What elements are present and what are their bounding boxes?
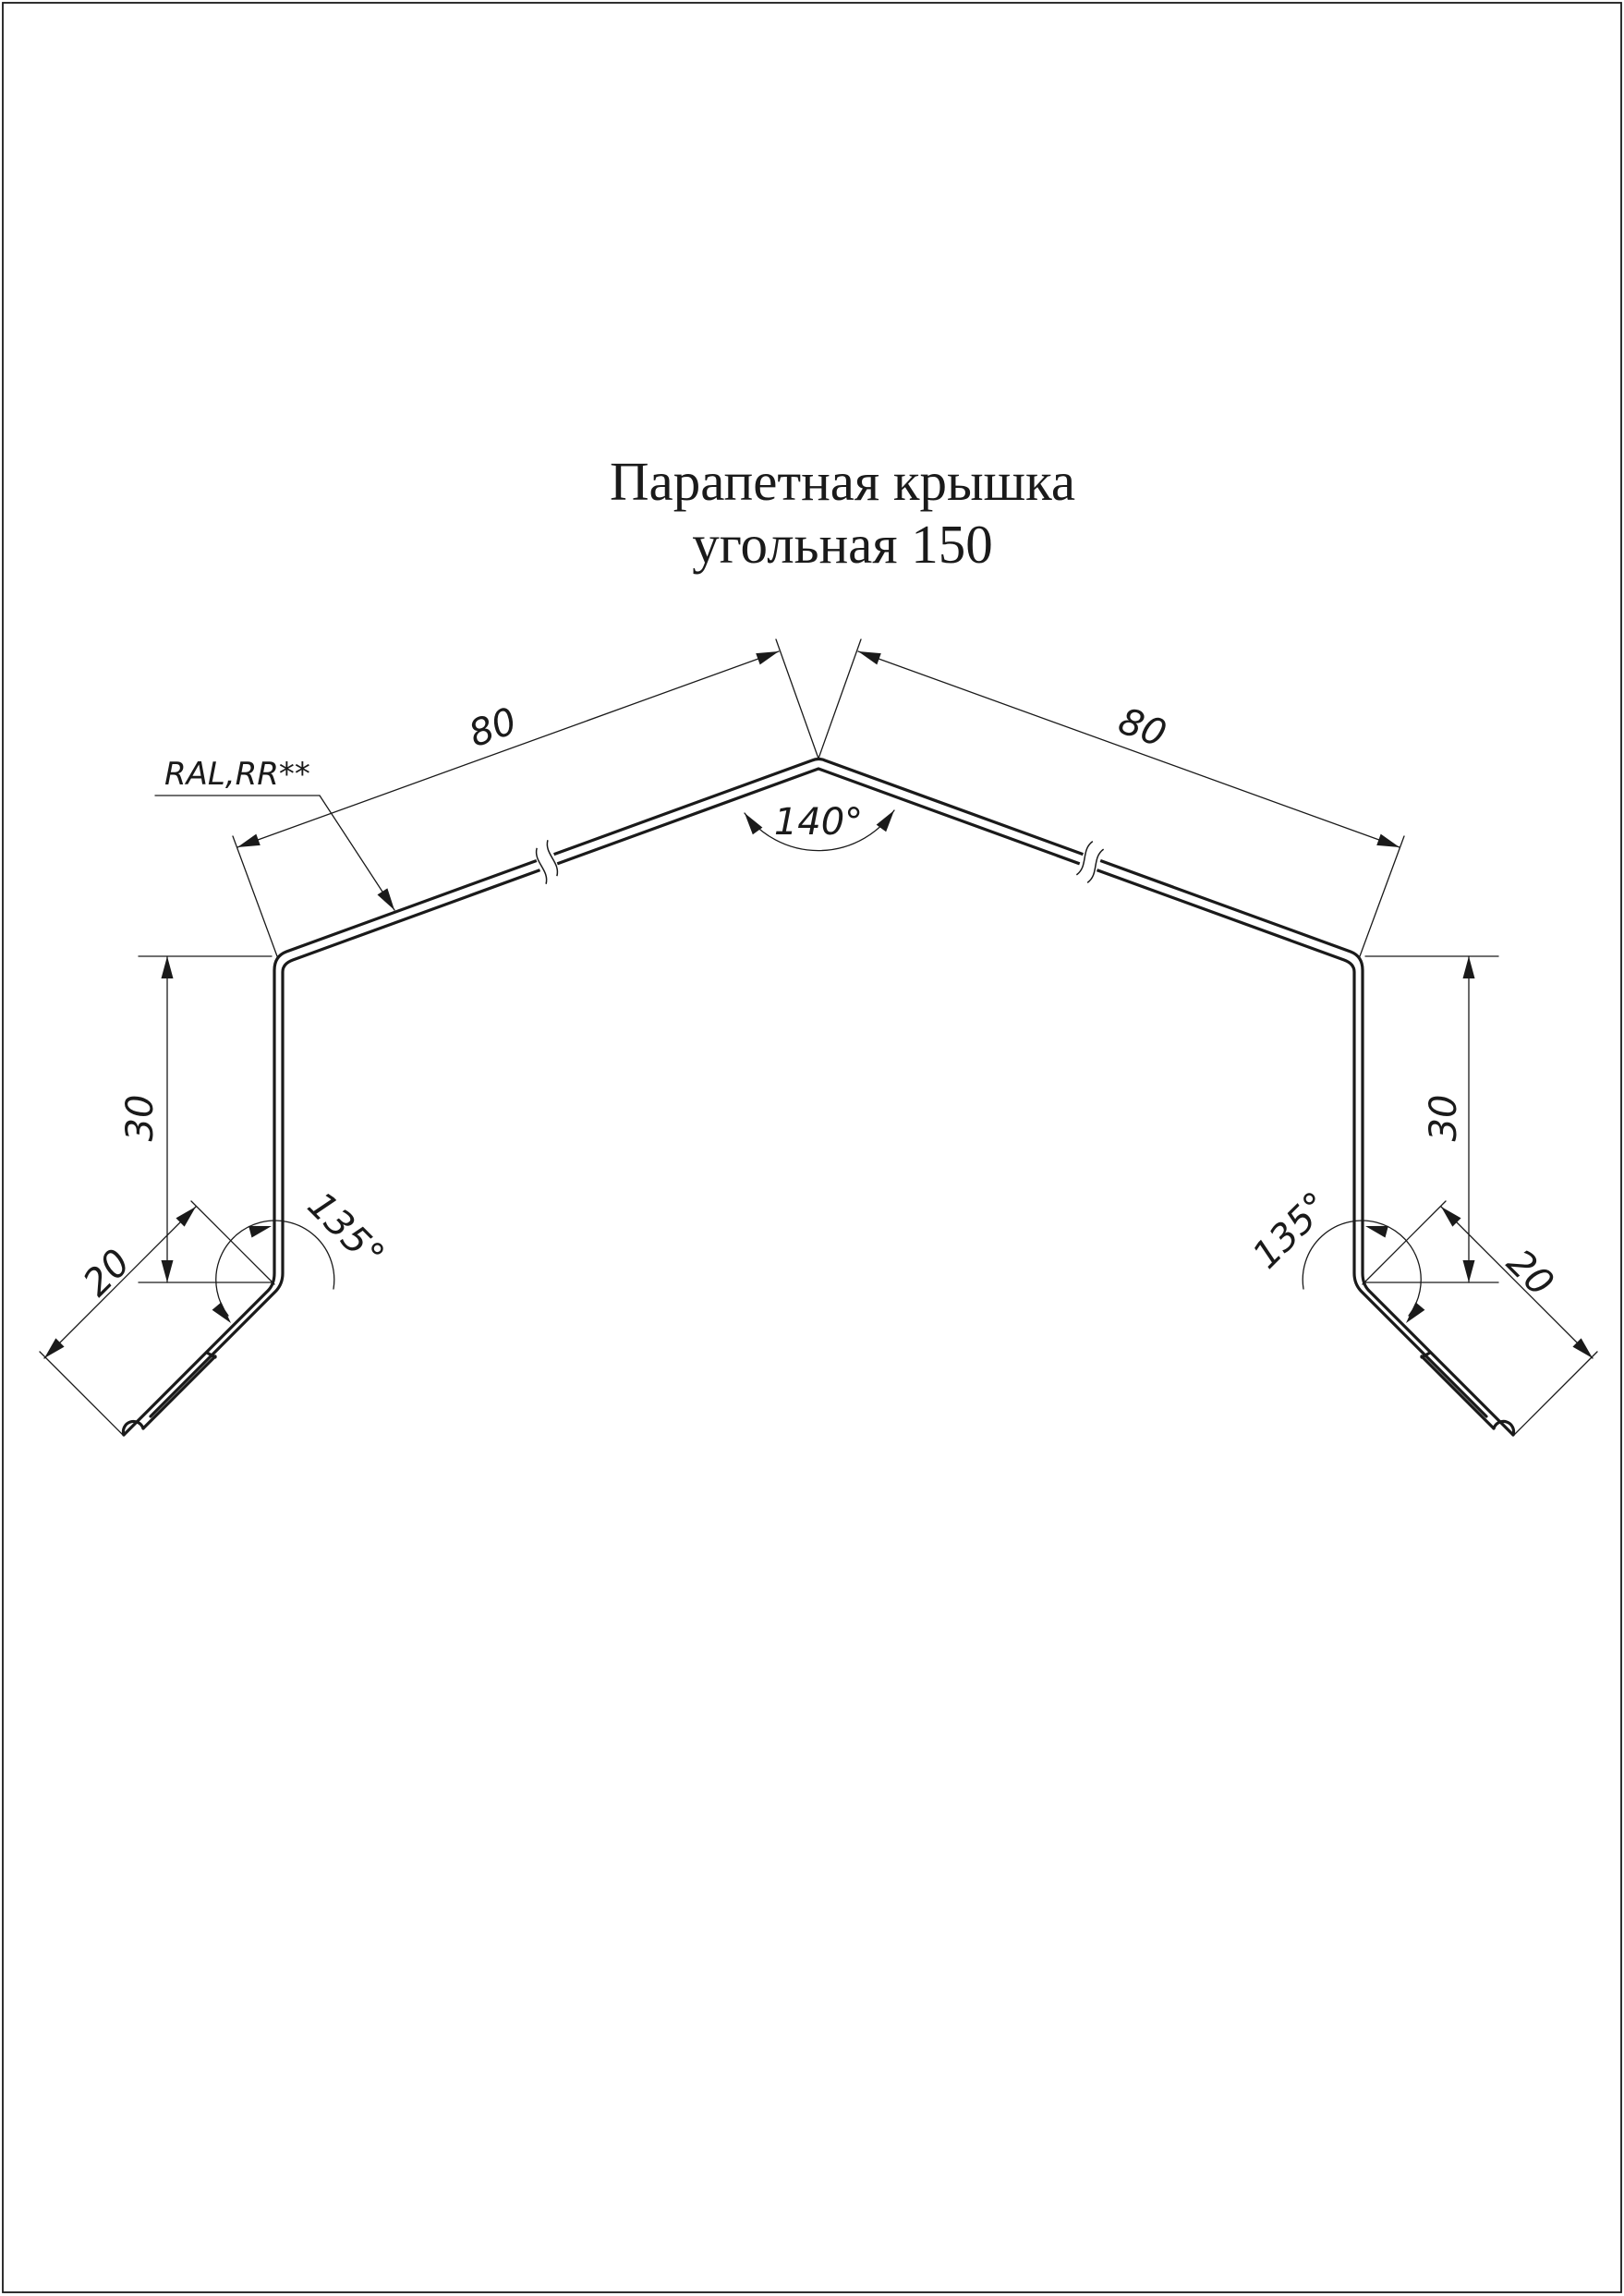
extension-line [1514,1352,1597,1435]
dim-value-flange-left: 20 [76,1242,139,1306]
dimension-line [858,651,1400,847]
profile-inner-line [151,769,1486,1416]
dimension-leg-left: 30 [119,956,272,1282]
extension-line [1360,836,1404,956]
profile-outline [123,759,1513,1436]
extension-line [233,836,277,956]
extension-line [191,1201,274,1284]
dim-value-slope-right: 80 [1113,699,1172,756]
profile-outer-line [124,759,1513,1436]
extension-line [776,639,818,759]
drawing-title-line1: Парапетная крышка [610,451,1075,512]
extension-line [1363,1201,1446,1284]
dim-value-flange-right: 20 [1498,1242,1562,1306]
dim-value-apex-angle: 140° [774,801,863,844]
technical-drawing: Парапетная крышка угольная 150 [0,0,1624,2296]
dimension-line [237,651,779,847]
dim-value-bend-angle-right: 135° [1244,1184,1338,1277]
dimension-bend-angle-left: 135° [212,1184,393,1327]
extension-line [818,639,861,759]
dim-value-leg-right: 30 [1423,1095,1465,1142]
page-border [3,3,1621,2292]
dimension-apex-angle: 140° [740,801,900,851]
drawing-title-line2: угольная 150 [692,514,992,575]
material-note-text: RAL,RR** [164,756,310,793]
dimension-bend-angle-right: 135° [1244,1184,1424,1327]
material-callout: RAL,RR** [155,756,399,914]
dimension-slope-right: 80 [818,639,1404,956]
dim-value-bend-angle-left: 135° [299,1184,393,1277]
dim-value-leg-left: 30 [119,1095,162,1142]
extension-line [40,1352,123,1435]
drawing-sheet: Парапетная крышка угольная 150 [0,0,1624,2296]
